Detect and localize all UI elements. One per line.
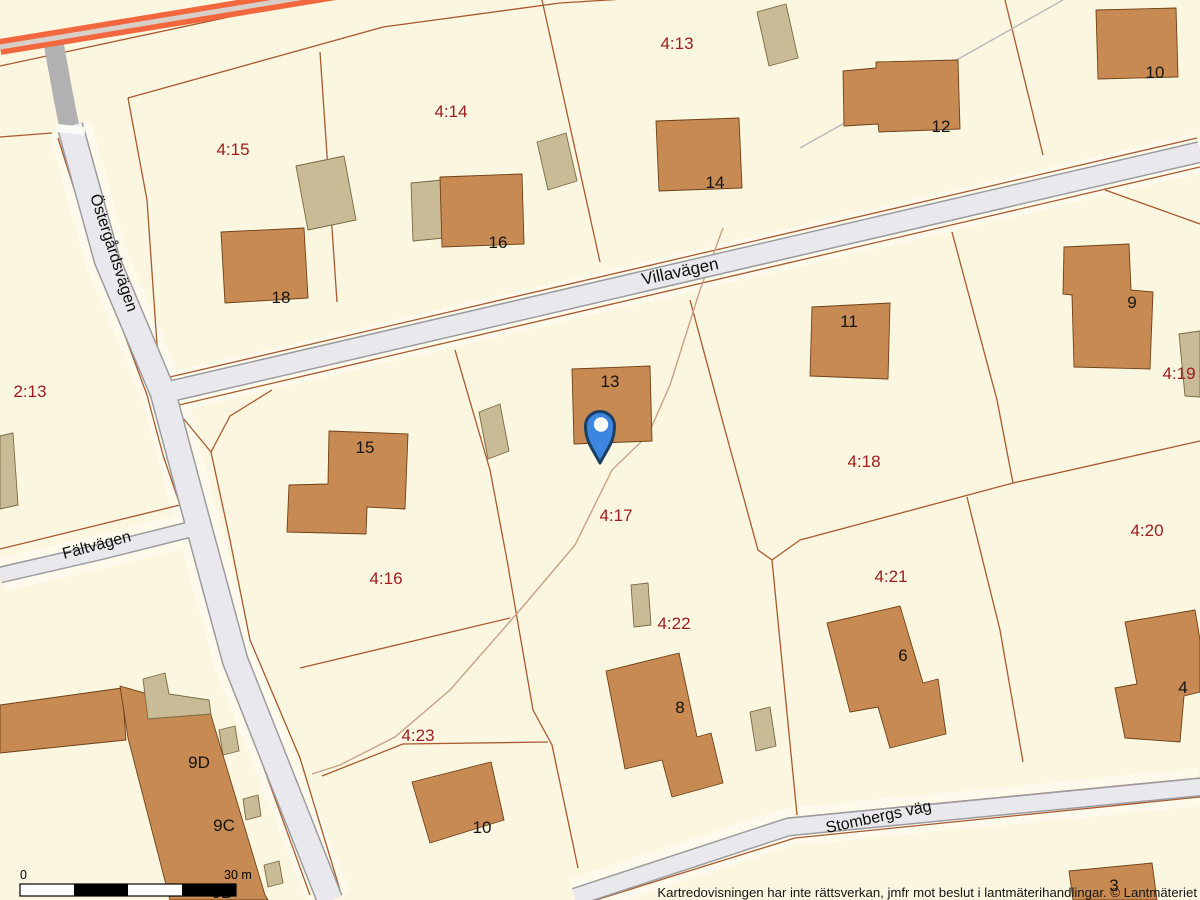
- scale-bar-distance: 30 m: [224, 868, 252, 882]
- outbuilding: [296, 156, 356, 230]
- parcel-label-4-23: 4:23: [401, 726, 434, 745]
- outbuilding: [757, 4, 798, 66]
- building: [1063, 244, 1153, 369]
- outbuilding: [631, 583, 651, 627]
- outbuilding: [0, 433, 18, 509]
- outbuilding: [411, 180, 444, 241]
- parcel-label-4-15: 4:15: [216, 140, 249, 159]
- building-number-16: 16: [489, 233, 508, 252]
- parcel-label-4-22: 4:22: [657, 614, 690, 633]
- outbuilding: [479, 404, 509, 459]
- building: [1115, 610, 1200, 742]
- map-canvas[interactable]: 4:13 4:14 4:15 2:13 4:16 4:17 4:18 4:19 …: [0, 0, 1200, 900]
- cadastral-map: 4:13 4:14 4:15 2:13 4:16 4:17 4:18 4:19 …: [0, 0, 1200, 900]
- building-number-9c: 9C: [213, 816, 235, 835]
- building: [606, 653, 723, 797]
- parcel-label-4-20: 4:20: [1130, 521, 1163, 540]
- outbuilding: [243, 795, 261, 820]
- parcel-label-4-18: 4:18: [847, 452, 880, 471]
- parcel-label-4-16: 4:16: [369, 569, 402, 588]
- building: [221, 228, 308, 303]
- building-number-13: 13: [601, 372, 620, 391]
- parcel-label-4-13: 4:13: [660, 34, 693, 53]
- building-number-11: 11: [840, 312, 858, 331]
- parcel-label-4-17: 4:17: [599, 506, 632, 525]
- building: [440, 174, 524, 247]
- road-ostergardsvagen-upper: [53, 40, 70, 130]
- building: [656, 118, 742, 191]
- building-number-9d: 9D: [188, 753, 210, 772]
- outbuilding: [143, 673, 211, 719]
- building-number-4: 4: [1178, 678, 1187, 697]
- building-number-18: 18: [272, 288, 291, 307]
- parcel-label-4-19: 4:19: [1162, 364, 1195, 383]
- scale-bar-zero: 0: [20, 868, 27, 882]
- building-number-14: 14: [706, 173, 725, 192]
- building-number-9: 9: [1127, 293, 1136, 312]
- location-pin-icon[interactable]: [586, 412, 615, 464]
- outbuilding: [264, 861, 283, 887]
- attribution-text: Kartredovisningen har inte rättsverkan, …: [657, 885, 1197, 900]
- parcel-label-2-13: 2:13: [13, 382, 46, 401]
- building: [827, 606, 946, 748]
- parcel-label-4-21: 4:21: [874, 567, 907, 586]
- building-number-15: 15: [356, 438, 375, 457]
- parcel-label-4-14: 4:14: [434, 102, 467, 121]
- building-number-12: 12: [932, 117, 951, 136]
- building: [0, 688, 126, 753]
- building-number-8: 8: [675, 698, 684, 717]
- outbuilding: [750, 707, 776, 751]
- building-number-10-bottom: 10: [473, 818, 492, 837]
- building: [1096, 8, 1178, 79]
- building: [287, 431, 408, 534]
- outbuilding: [537, 133, 577, 190]
- building-number-6: 6: [898, 646, 907, 665]
- building-number-10-top: 10: [1146, 63, 1165, 82]
